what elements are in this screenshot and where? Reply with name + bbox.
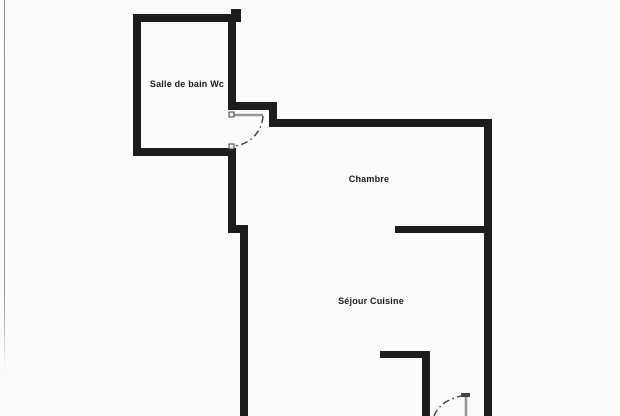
bathroom-door (229, 112, 263, 149)
entry-door-leaf-cap (461, 393, 470, 397)
room-label-sejour-cuisine: Séjour Cuisine (338, 296, 404, 306)
wall-below-bath (228, 148, 236, 233)
floor-plan-drawing (0, 0, 620, 416)
wall-bath-top (133, 14, 241, 22)
entry-door-swing-arc (434, 396, 461, 416)
floor-plan-page: Salle de bain Wc Chambre Séjour Cuisine (0, 0, 620, 416)
wall-lower-left (240, 225, 248, 416)
wall-right (484, 119, 492, 416)
entry-door (434, 393, 470, 416)
room-label-chambre: Chambre (349, 174, 389, 184)
wall-bath-bottom (133, 148, 236, 156)
wall-kitchen-stub-side (422, 351, 430, 416)
bathroom-door-swing-arc (234, 116, 263, 146)
bathroom-door-latch-marker (229, 144, 234, 149)
wall-bath-right (228, 14, 236, 110)
wall-partition-chambre-sejour (395, 226, 492, 233)
wall-chambre-top (269, 119, 492, 127)
wall-bath-left (133, 14, 141, 156)
room-label-salle-de-bain-wc: Salle de bain Wc (150, 79, 224, 89)
bathroom-door-hinge-marker (229, 112, 234, 117)
walls (133, 9, 492, 416)
